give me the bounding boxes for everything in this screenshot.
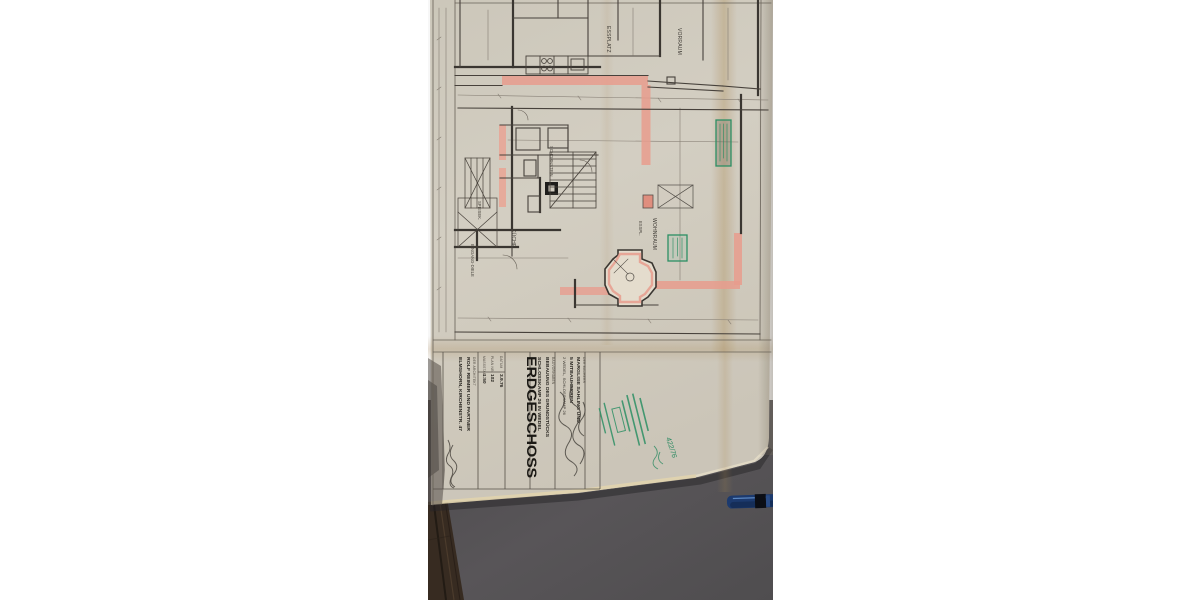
photo-of-floor-plan: VORRAUM ESSPLATZ WOHNRAUM ESSPL. KÜCHE S… bbox=[428, 0, 773, 600]
screenshot-canvas: VORRAUM ESSPLATZ WOHNRAUM ESSPL. KÜCHE S… bbox=[0, 0, 1200, 600]
photo-vignette bbox=[428, 0, 773, 600]
photo-svg: VORRAUM ESSPLATZ WOHNRAUM ESSPL. KÜCHE S… bbox=[428, 0, 773, 600]
